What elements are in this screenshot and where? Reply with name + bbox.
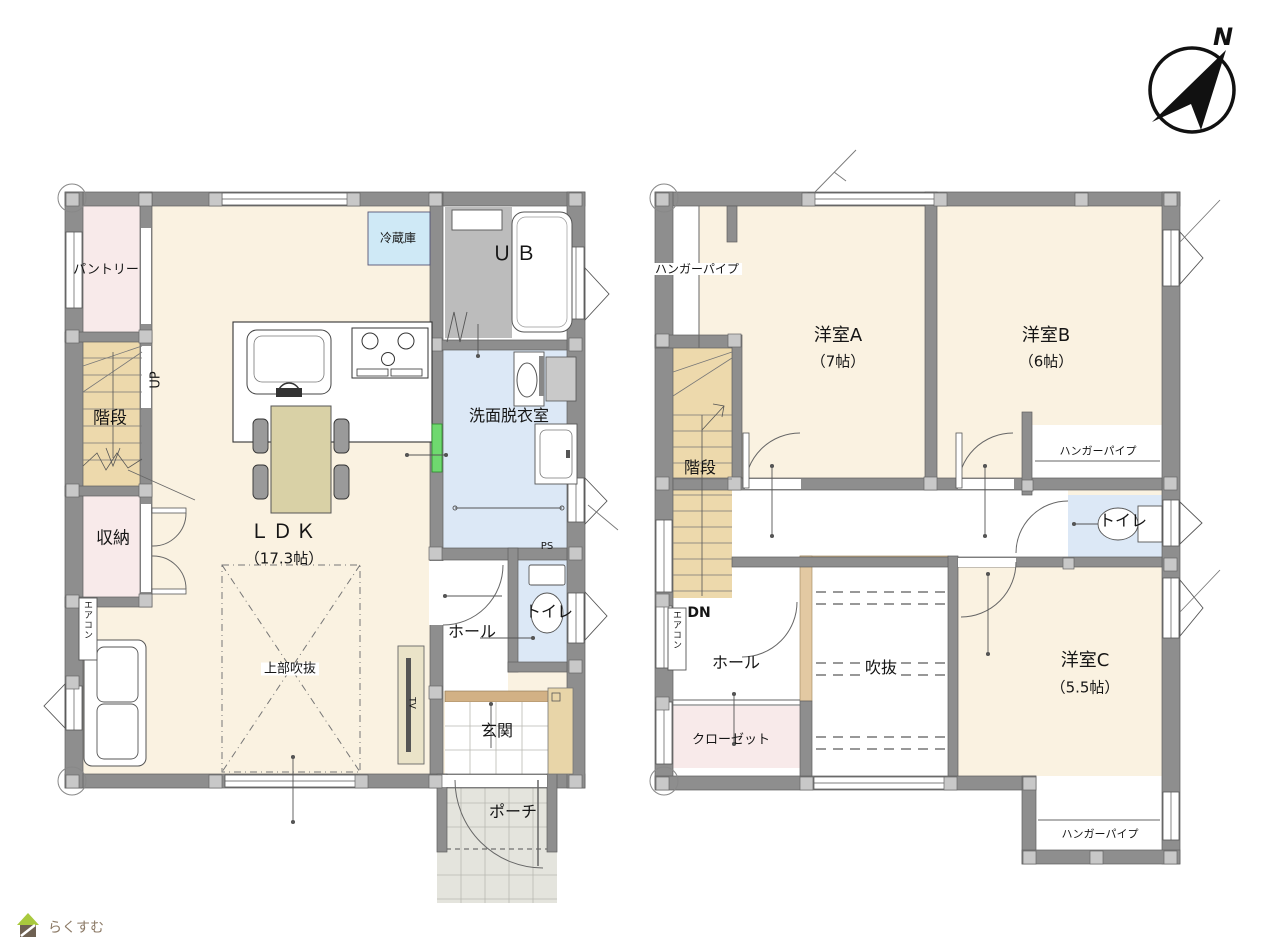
label-entrance: 玄関 <box>481 723 513 739</box>
label-porch: ポーチ <box>489 804 537 820</box>
label-void-2f: 吹抜 <box>862 660 900 676</box>
label-ldk-size: （17.3帖） <box>245 552 323 567</box>
floor2-rooms <box>673 206 1162 850</box>
label-fridge: 冷蔵庫 <box>380 232 416 244</box>
dining-table <box>271 406 331 513</box>
label-room-c-size: （5.5帖） <box>1051 681 1120 696</box>
chair <box>334 465 349 499</box>
chair <box>334 419 349 453</box>
bathtub <box>512 212 572 332</box>
room-a-door-leaf <box>743 433 749 488</box>
label-closet-2f: クローゼット <box>692 734 770 747</box>
label-toilet-2f: トイレ <box>1099 513 1147 529</box>
label-washroom: 洗面脱衣室 <box>469 408 549 424</box>
brand-logo-text: らくすむ <box>48 921 104 935</box>
compass-north-label: N <box>1213 25 1233 49</box>
bath-counter <box>452 210 502 230</box>
chair <box>253 419 268 453</box>
label-hall-1f: ホール <box>448 624 496 640</box>
label-hanger-pipe-a: ハンガーパイプ <box>652 263 742 275</box>
floor2-window-triangles <box>1180 232 1203 636</box>
room-b-door-leaf <box>956 433 962 488</box>
label-ldk: ＬＤＫ <box>250 521 319 541</box>
label-tv: TV <box>407 697 416 709</box>
label-stairs-1f: 階段 <box>93 411 127 428</box>
label-stairs-2f: 階段 <box>684 460 716 476</box>
label-room-b: 洋室B <box>1022 327 1070 345</box>
label-pipe-space: PS <box>541 542 553 552</box>
label-storage: 収納 <box>96 531 130 548</box>
brand-logo-icon <box>17 913 39 937</box>
floorplan-drawing <box>0 0 1277 946</box>
label-hanger-pipe-c: ハンガーパイプ <box>1062 829 1139 840</box>
label-hall-2f: ホール <box>712 655 760 671</box>
wash-basin <box>535 424 577 484</box>
label-room-a: 洋室A <box>814 327 862 345</box>
label-unit-bath: ＵＢ <box>492 243 540 263</box>
label-toilet-1f: トイレ <box>525 604 573 620</box>
label-void-above: 上部吹抜 <box>261 663 319 676</box>
eave-mark <box>588 505 618 530</box>
label-room-a-size: （7帖） <box>811 355 866 370</box>
sliding-door-green <box>432 424 442 472</box>
vanity-counter <box>546 357 576 401</box>
compass-icon <box>1150 48 1234 132</box>
storage-door-leaf <box>152 508 186 513</box>
label-stairs-up: UP <box>150 371 163 388</box>
label-room-c: 洋室C <box>1061 652 1110 670</box>
toilet-tank <box>529 565 565 585</box>
chair <box>253 465 268 499</box>
label-hanger-pipe-b: ハンガーパイプ <box>1060 446 1137 457</box>
label-stairs-dn: DN <box>687 606 710 620</box>
floorplan-canvas: パントリー 階段 UP 収納 エアコン ＬＤＫ （17.3帖） 上部吹抜 冷蔵庫… <box>0 0 1277 946</box>
label-aircon-1f: エアコン <box>82 600 91 640</box>
label-aircon-2f: エアコン <box>671 610 680 650</box>
label-room-b-size: （6帖） <box>1019 355 1074 370</box>
storage-door-leaf <box>152 589 186 594</box>
label-pantry: パントリー <box>73 264 139 277</box>
